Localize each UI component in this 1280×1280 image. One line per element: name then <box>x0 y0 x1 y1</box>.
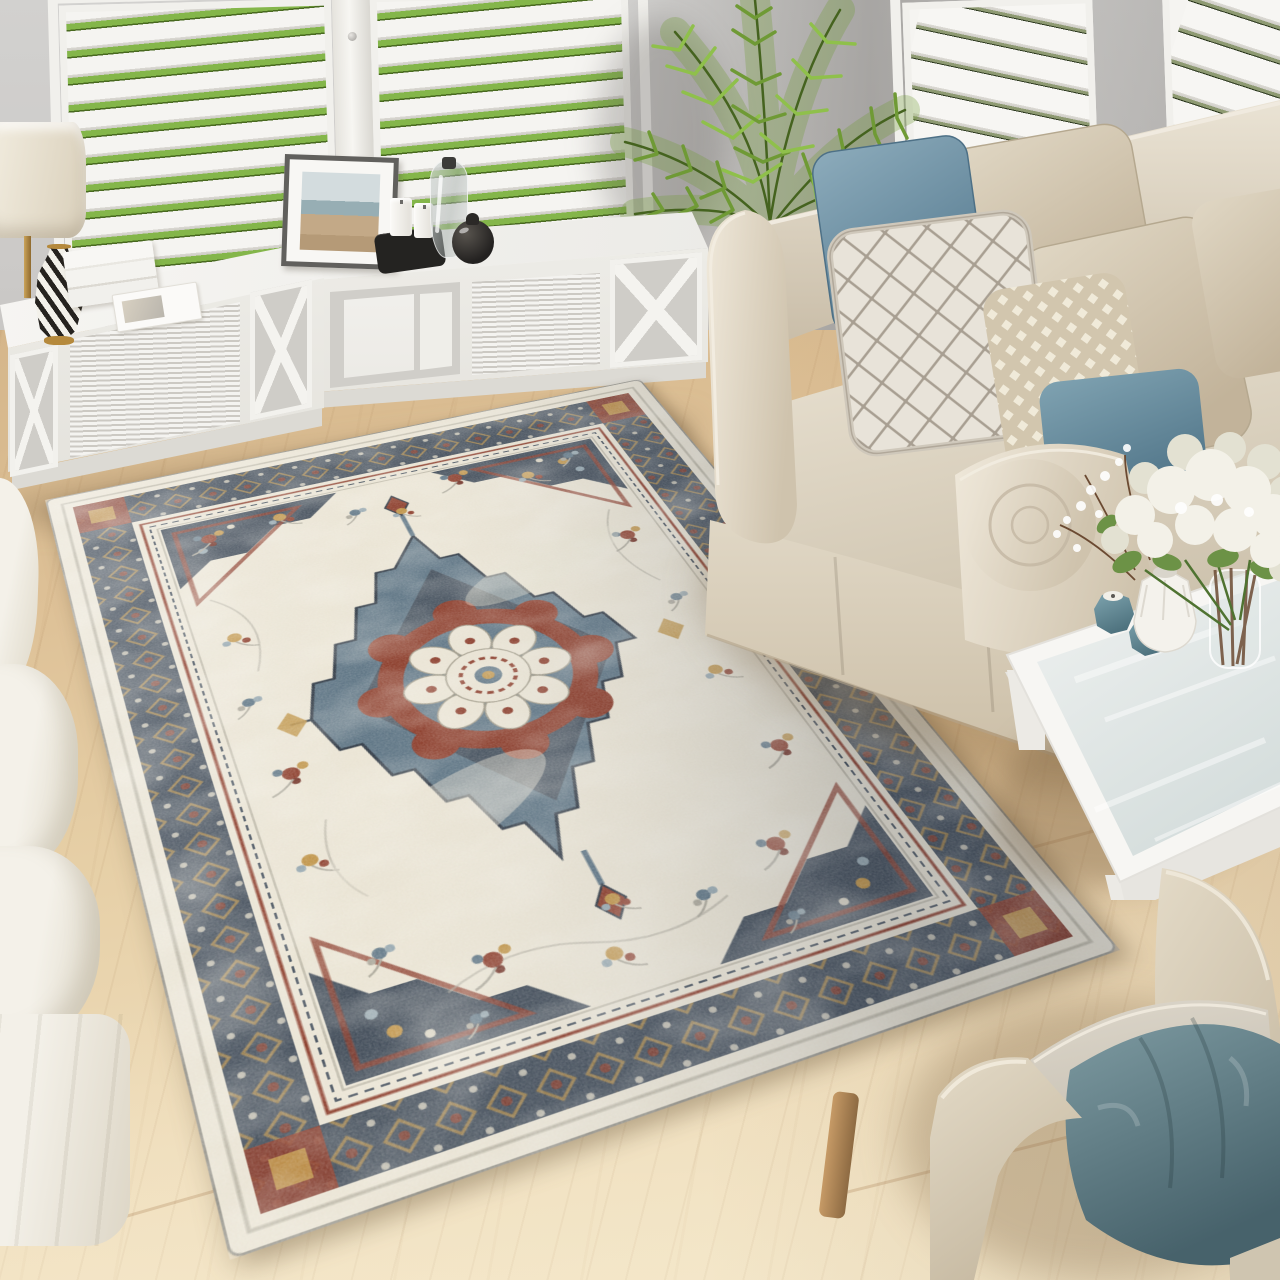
x-brace-panel <box>250 279 312 420</box>
x-brace-panel <box>10 345 58 477</box>
coffee-table <box>985 420 1280 900</box>
beach-photo <box>300 172 381 253</box>
living-room-photo: Bright coastal living room photograph: a… <box>0 0 1280 1280</box>
vase-gold-foot <box>44 336 74 345</box>
sofa-left-arm <box>707 210 797 543</box>
table-lamp <box>0 122 86 238</box>
vase-gold-ring <box>47 244 71 249</box>
left-sofa-skirt <box>0 1014 130 1246</box>
pillar-candle <box>390 198 412 236</box>
armchair <box>930 858 1280 1280</box>
black-jar <box>452 220 494 264</box>
white-vase <box>1134 566 1196 652</box>
lamp-stem <box>24 236 31 298</box>
